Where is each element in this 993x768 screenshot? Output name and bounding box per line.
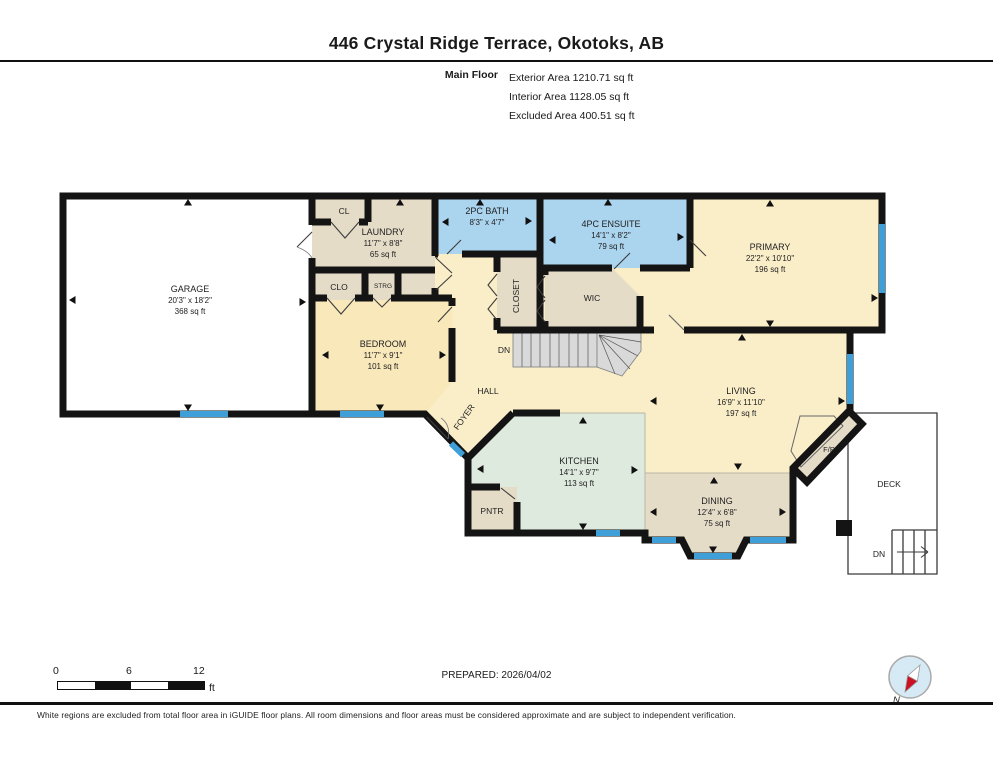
deck-post xyxy=(836,520,852,536)
living-dims: 16'9" x 11'10" xyxy=(717,398,765,407)
garage-label: GARAGE xyxy=(171,284,210,294)
deck-outline xyxy=(848,413,937,574)
floorplan-page: 446 Crystal Ridge Terrace, Okotoks, AB M… xyxy=(0,0,993,768)
bath-label: 2PC BATH xyxy=(465,206,508,216)
prepared-date: PREPARED: 2026/04/02 xyxy=(0,670,993,681)
deck-stairs-arrow xyxy=(897,547,928,558)
scale-bar xyxy=(57,681,205,690)
dining-dims: 12'4" x 6'8" xyxy=(697,508,737,517)
floorplan-drawing: GARAGE 20'3" x 18'2" 368 sq ft LAUNDRY 1… xyxy=(0,0,993,768)
dining-label: DINING xyxy=(701,496,733,506)
scale-unit: ft xyxy=(209,682,215,694)
hall-label: HALL xyxy=(477,386,499,396)
bedroom-area: 101 sq ft xyxy=(368,362,399,371)
kitchen-dims: 14'1" x 9'7" xyxy=(559,468,599,477)
dining-area: 75 sq ft xyxy=(704,519,731,528)
garage-fill xyxy=(63,196,312,414)
bedroom-label: BEDROOM xyxy=(360,339,407,349)
laundry-label: LAUNDRY xyxy=(362,227,405,237)
ensuite-dims: 14'1" x 8'2" xyxy=(591,231,631,240)
bedroom-dims: 11'7" x 9'1" xyxy=(364,351,403,360)
laundry-dims: 11'7" x 8'8" xyxy=(364,239,403,248)
clo-label: CLO xyxy=(330,282,348,292)
living-label: LIVING xyxy=(726,386,756,396)
deck-label: DECK xyxy=(877,479,901,489)
stairs-dn-label: DN xyxy=(498,345,510,355)
footer-divider xyxy=(0,702,993,705)
living-area: 197 sq ft xyxy=(726,409,757,418)
garage-area: 368 sq ft xyxy=(175,307,206,316)
closet-label: CLOSET xyxy=(511,279,521,313)
laundry-area: 65 sq ft xyxy=(370,250,397,259)
ensuite-area: 79 sq ft xyxy=(598,242,625,251)
pntr-label: PNTR xyxy=(480,506,503,516)
compass-icon: N xyxy=(889,656,931,706)
ensuite-label: 4PC ENSUITE xyxy=(581,219,640,229)
kitchen-label: KITCHEN xyxy=(559,456,599,466)
garage-dims: 20'3" x 18'2" xyxy=(168,296,212,305)
strg-label: STRG xyxy=(374,283,392,290)
fp-label: F/P xyxy=(823,445,835,454)
bath-dims: 8'3" x 4'7" xyxy=(470,218,505,227)
disclaimer-text: White regions are excluded from total fl… xyxy=(37,710,736,720)
deck-dn-label: DN xyxy=(873,549,885,559)
kitchen-area: 113 sq ft xyxy=(564,479,595,488)
primary-label: PRIMARY xyxy=(750,242,791,252)
wic-label: WIC xyxy=(584,293,601,303)
primary-dims: 22'2" x 10'10" xyxy=(746,254,794,263)
cl-label: CL xyxy=(339,206,350,216)
primary-area: 196 sq ft xyxy=(755,265,786,274)
